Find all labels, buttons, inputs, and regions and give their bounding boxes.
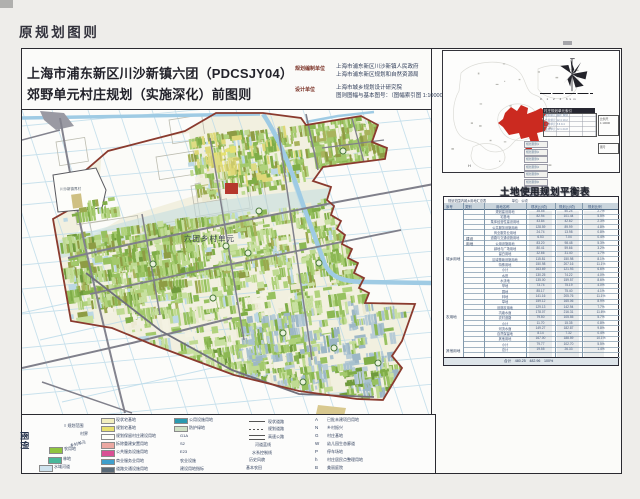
svg-text:六团乡村单元: 六团乡村单元 <box>184 233 235 243</box>
svg-text:川沙新镇界村: 川沙新镇界村 <box>60 186 81 191</box>
